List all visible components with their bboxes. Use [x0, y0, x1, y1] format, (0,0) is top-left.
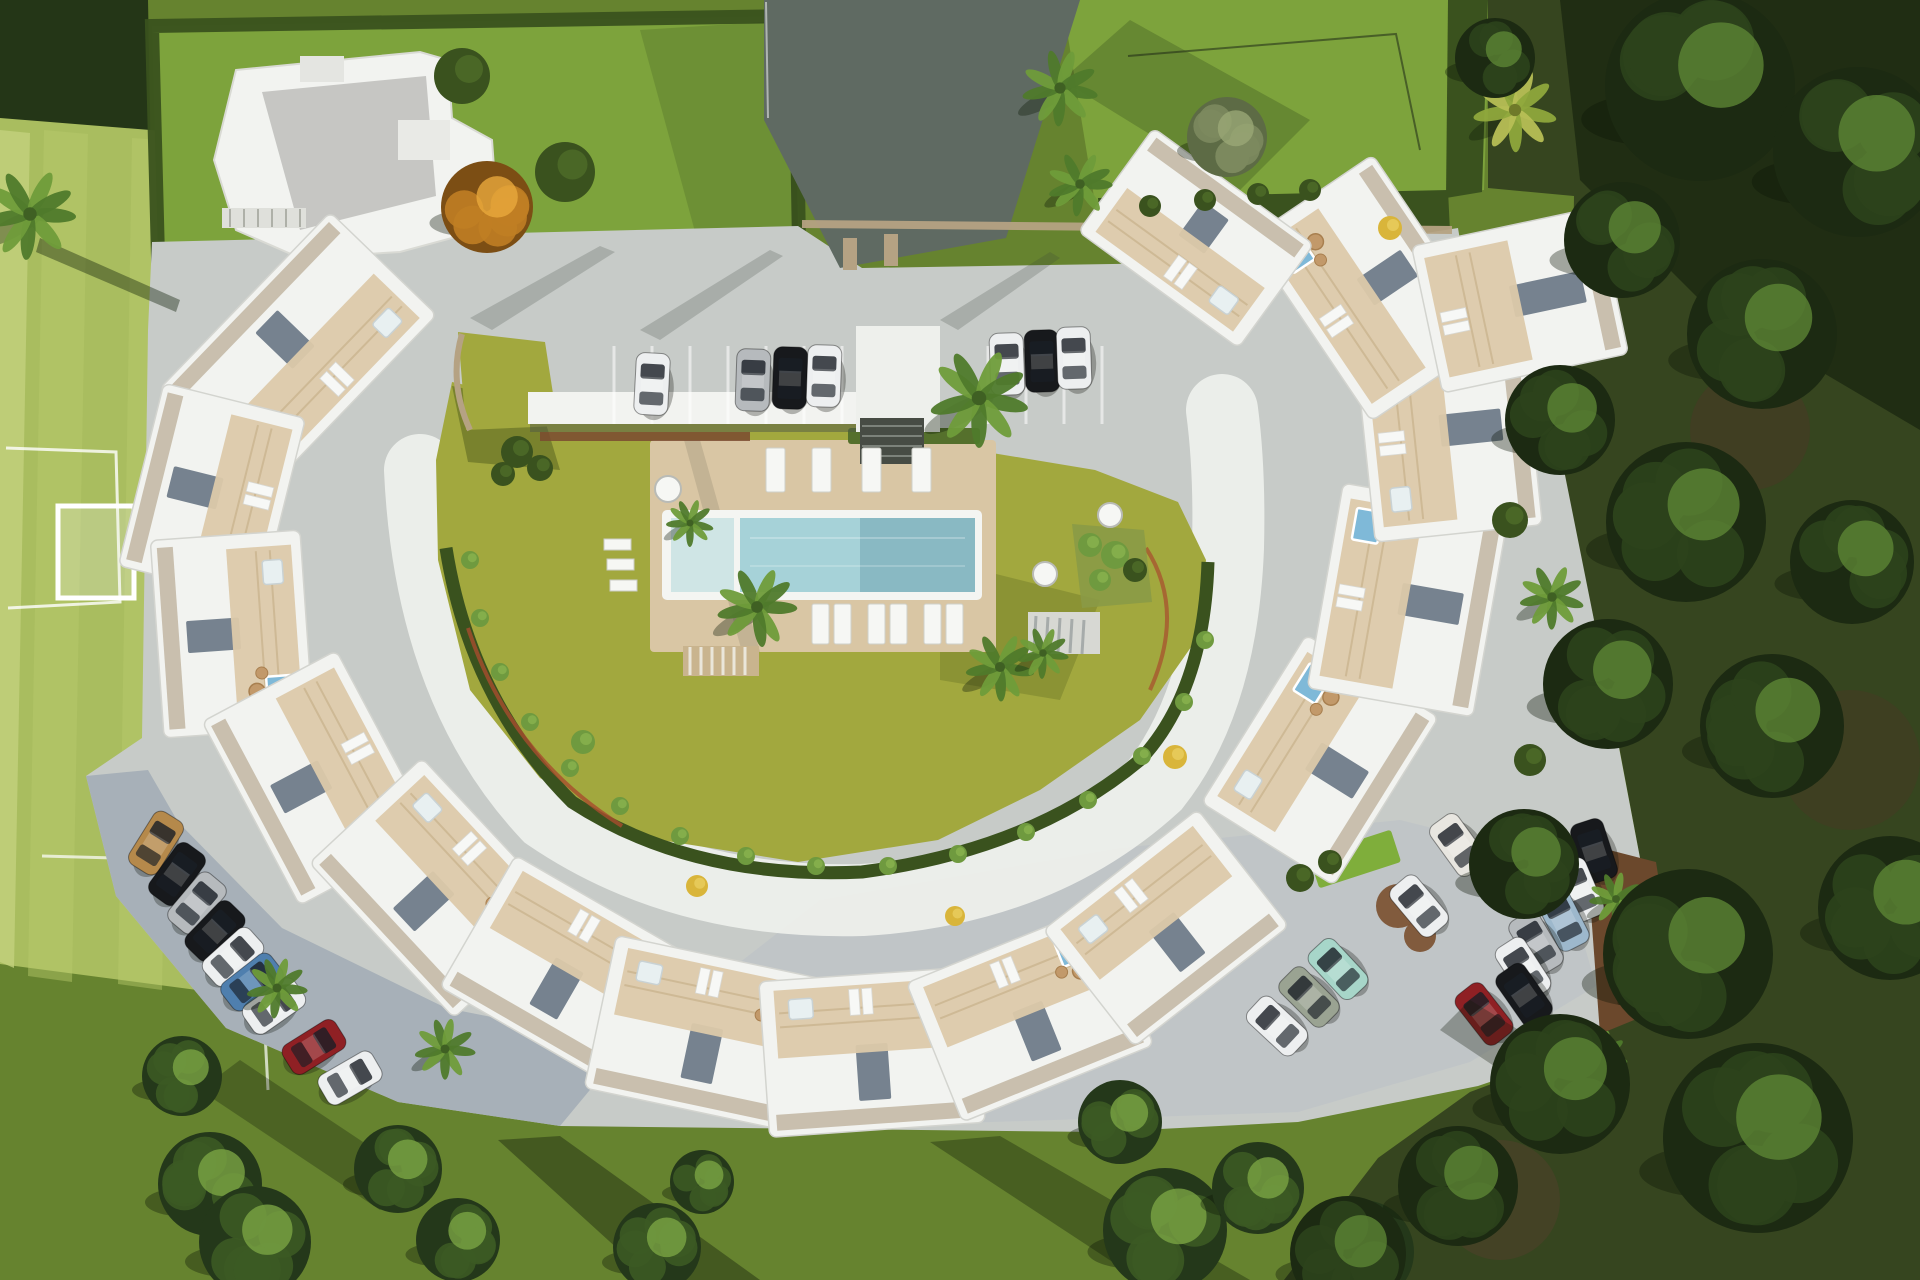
car-rear-window: [1062, 366, 1086, 380]
canopy-highlight: [1838, 520, 1894, 576]
car-roof: [813, 369, 836, 385]
palm-crown: [273, 984, 282, 993]
jacuzzi: [636, 961, 664, 986]
bush: [686, 875, 708, 897]
bush-highlight: [1387, 219, 1399, 231]
bush: [471, 609, 489, 627]
bush: [945, 906, 965, 926]
bush-highlight: [678, 829, 687, 838]
pool-lounger: [812, 604, 829, 644]
bush: [1163, 745, 1187, 769]
canopy-highlight: [1593, 640, 1652, 699]
canopy-highlight: [1218, 110, 1254, 146]
bush-highlight: [537, 458, 550, 471]
bush: [1196, 631, 1214, 649]
pool-lounger: [862, 448, 881, 492]
bush: [807, 857, 825, 875]
villa-steps: [222, 208, 306, 228]
palm-crown: [1075, 179, 1085, 189]
bush-highlight: [1203, 633, 1212, 642]
bush: [535, 142, 595, 202]
palm-crown: [441, 1045, 450, 1054]
round-table: [1033, 562, 1057, 586]
bush-highlight: [744, 849, 753, 858]
canopy-highlight: [1678, 22, 1764, 108]
bush: [949, 845, 967, 863]
bush: [571, 730, 595, 754]
pool-lounger: [766, 448, 785, 492]
bush-highlight: [1024, 825, 1033, 834]
round-table: [655, 476, 681, 502]
villa-roof-wing: [398, 120, 450, 160]
canopy-highlight: [1755, 678, 1820, 743]
bush: [1017, 823, 1035, 841]
terrace-lounger: [1378, 431, 1405, 444]
jacuzzi: [1390, 486, 1412, 512]
bush: [671, 827, 689, 845]
bush-highlight: [568, 761, 577, 770]
canopy-highlight: [1609, 201, 1661, 253]
bush-highlight: [1202, 192, 1213, 203]
canopy-highlight: [242, 1204, 292, 1254]
bush-highlight: [953, 909, 963, 919]
palm-crown: [1612, 895, 1620, 903]
bush-highlight: [1297, 868, 1311, 882]
palm-crown: [995, 662, 1005, 672]
palm-crown: [751, 601, 763, 613]
bush: [561, 759, 579, 777]
bush-highlight: [500, 465, 512, 477]
canopy-highlight: [647, 1218, 687, 1258]
palm-crown: [1547, 592, 1557, 602]
bush-highlight: [513, 440, 529, 456]
bush: [611, 797, 629, 815]
bush-highlight: [580, 733, 592, 745]
jacuzzi: [788, 998, 813, 1020]
canopy-highlight: [1486, 31, 1522, 67]
car-rear-window: [811, 384, 835, 398]
bush-highlight: [1255, 186, 1266, 197]
canopy-highlight: [1838, 95, 1915, 172]
pool-lounger: [946, 604, 963, 644]
bush-highlight: [498, 665, 507, 674]
canopy-highlight: [1151, 1188, 1207, 1244]
pool-lounger: [890, 604, 907, 644]
bush-highlight: [1182, 695, 1191, 704]
bush: [527, 455, 553, 481]
bush: [1194, 189, 1216, 211]
wall-pillar: [843, 238, 857, 270]
bush-highlight: [1140, 749, 1149, 758]
bush-highlight: [1526, 748, 1542, 764]
bush-highlight: [1147, 198, 1158, 209]
palm-crown: [1039, 649, 1047, 657]
bush-highlight: [1112, 545, 1126, 559]
rattan-chair: [255, 667, 268, 680]
bush: [1286, 864, 1314, 892]
canopy-highlight: [1745, 284, 1813, 352]
terrace-lounger: [1379, 444, 1406, 457]
bush-highlight: [694, 878, 705, 889]
terrace-lounger: [849, 989, 861, 1016]
car-rear-window: [639, 391, 664, 405]
pool-lounger: [812, 448, 831, 492]
canopy-highlight: [1668, 897, 1745, 974]
pool-lounger: [868, 604, 885, 644]
bush-highlight: [1327, 853, 1339, 865]
canopy-highlight: [1511, 827, 1561, 877]
bush-highlight: [468, 553, 477, 562]
bush: [1078, 533, 1102, 557]
bush: [1492, 502, 1528, 538]
bush-highlight: [1087, 536, 1099, 548]
bush: [434, 48, 490, 104]
bush: [1139, 195, 1161, 217]
bush: [1318, 850, 1342, 874]
wall-pillar: [884, 234, 898, 266]
bush-highlight: [1086, 793, 1095, 802]
bush: [1079, 791, 1097, 809]
bush-highlight: [956, 847, 965, 856]
bush: [1378, 216, 1402, 240]
canopy-highlight: [448, 1212, 486, 1250]
canopy-highlight: [1335, 1215, 1387, 1267]
car-roof: [742, 373, 765, 389]
palm-crown: [1054, 82, 1065, 93]
canopy-highlight: [1736, 1074, 1822, 1160]
bush-highlight: [1307, 182, 1318, 193]
pool-lounger: [834, 604, 851, 644]
bush: [1247, 183, 1269, 205]
pool-lounger: [912, 448, 931, 492]
canopy-highlight: [1668, 468, 1740, 540]
car-roof: [641, 376, 664, 392]
lawn-lounger: [604, 539, 631, 550]
bush: [1175, 693, 1193, 711]
car-roof: [1063, 351, 1086, 367]
bush-highlight: [886, 859, 895, 868]
car-roof: [1031, 354, 1054, 370]
villa-roof-wing: [300, 56, 344, 82]
bush-highlight: [478, 611, 487, 620]
bush: [1133, 747, 1151, 765]
canopy-highlight: [388, 1140, 428, 1180]
bush-highlight: [528, 715, 537, 724]
entrance-walkway: [856, 326, 940, 432]
bush: [521, 713, 539, 731]
canopy-highlight: [1247, 1157, 1288, 1198]
bush: [1089, 569, 1111, 591]
wall-planter-strip: [540, 432, 750, 441]
palm-crown: [1509, 104, 1521, 116]
bush: [737, 847, 755, 865]
pool-steps: [683, 646, 759, 676]
pool-lounger: [924, 604, 941, 644]
canopy-highlight: [173, 1049, 209, 1085]
jacuzzi: [262, 559, 284, 584]
bush-highlight: [1132, 561, 1144, 573]
canopy-highlight: [1444, 1146, 1498, 1200]
bush-highlight: [1097, 572, 1108, 583]
bush-highlight: [618, 799, 627, 808]
bush-highlight: [558, 150, 588, 180]
car-rear-window: [740, 388, 764, 402]
bush: [491, 462, 515, 486]
palm-crown: [687, 520, 694, 527]
bush: [1514, 744, 1546, 776]
round-table: [1098, 503, 1122, 527]
canopy-highlight: [695, 1161, 724, 1190]
bush: [1123, 558, 1147, 582]
canopy-highlight: [1547, 383, 1597, 433]
bush: [491, 663, 509, 681]
bush-highlight: [1506, 507, 1524, 525]
car-rear-window: [1030, 369, 1054, 383]
bush-highlight: [1172, 748, 1184, 760]
bush-highlight: [455, 55, 483, 83]
bush: [461, 551, 479, 569]
palm-crown: [972, 391, 987, 406]
aerial-site-render: Aerial 3D render of a crescent-shaped wh…: [0, 0, 1920, 1280]
car-rear-window: [777, 386, 801, 400]
terrace-lounger: [862, 988, 874, 1015]
bush-highlight: [814, 859, 823, 868]
lawn-lounger: [610, 580, 637, 591]
canopy-highlight: [1110, 1094, 1148, 1132]
bush: [879, 857, 897, 875]
pool-deep-end: [860, 518, 975, 592]
palm-crown: [23, 207, 36, 220]
car-roof: [779, 371, 802, 387]
bush: [1299, 179, 1321, 201]
canopy-highlight: [476, 176, 517, 217]
render-canvas: Aerial 3D render of a crescent-shaped wh…: [0, 0, 1920, 1280]
canopy-highlight: [1544, 1037, 1607, 1100]
lawn-lounger: [607, 559, 634, 570]
wall-shadow: [530, 424, 884, 432]
